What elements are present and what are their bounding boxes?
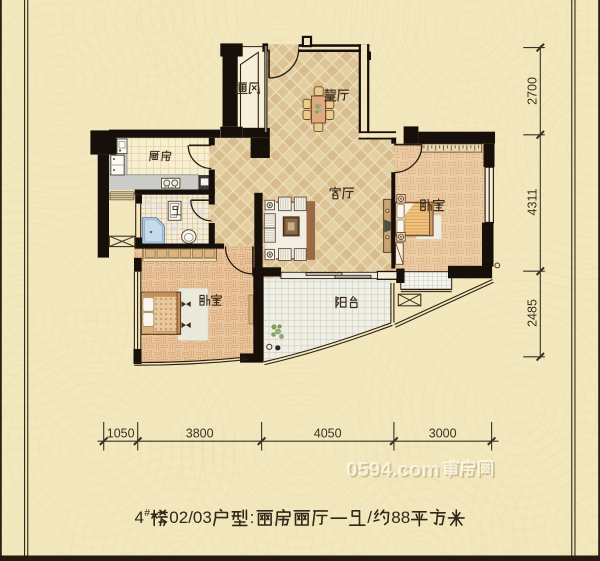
svg-text:3000: 3000 — [429, 427, 457, 441]
svg-text:/: / — [367, 508, 372, 527]
svg-text:3800: 3800 — [186, 427, 214, 441]
svg-text::: : — [250, 508, 255, 527]
svg-text:2700: 2700 — [526, 77, 540, 105]
svg-text:4050: 4050 — [314, 427, 342, 441]
svg-text:4: 4 — [135, 508, 144, 527]
svg-text:1050: 1050 — [107, 427, 135, 441]
svg-text:4311: 4311 — [526, 189, 540, 216]
svg-text:#: # — [144, 507, 150, 519]
svg-text:0594.com: 0594.com — [346, 458, 439, 481]
svg-text:2485: 2485 — [526, 299, 540, 327]
svg-text:88: 88 — [391, 508, 410, 527]
svg-text:02/03: 02/03 — [169, 508, 212, 527]
